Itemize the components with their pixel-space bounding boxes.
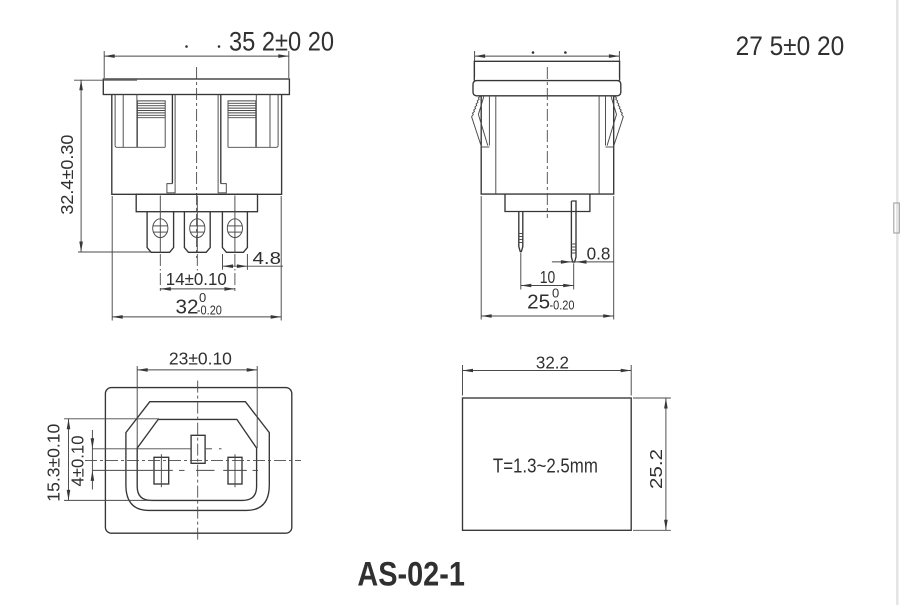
svg-text:4±0.10: 4±0.10 — [68, 435, 88, 486]
svg-text:14±0.10: 14±0.10 — [166, 269, 227, 289]
svg-text:25.2: 25.2 — [646, 449, 666, 489]
svg-text:23±0.10: 23±0.10 — [169, 348, 232, 368]
svg-text:4.8: 4.8 — [253, 248, 282, 268]
svg-text:27 5±0 20: 27 5±0 20 — [736, 31, 845, 61]
svg-text:32: 32 — [176, 296, 199, 319]
svg-text:T=1.3~2.5mm: T=1.3~2.5mm — [493, 455, 598, 477]
svg-text:25: 25 — [527, 291, 550, 314]
svg-text:-0.20: -0.20 — [197, 303, 222, 318]
svg-text:-0.20: -0.20 — [550, 298, 575, 313]
svg-text:10: 10 — [540, 267, 556, 287]
svg-text:32.4±0.30: 32.4±0.30 — [57, 134, 77, 214]
svg-text:35 2±0 20: 35 2±0 20 — [229, 27, 334, 57]
svg-text:15.3±0.10: 15.3±0.10 — [44, 423, 64, 501]
svg-text:AS-02-1: AS-02-1 — [357, 556, 465, 594]
svg-text:32.2: 32.2 — [536, 353, 569, 373]
svg-text:0.8: 0.8 — [587, 243, 611, 263]
